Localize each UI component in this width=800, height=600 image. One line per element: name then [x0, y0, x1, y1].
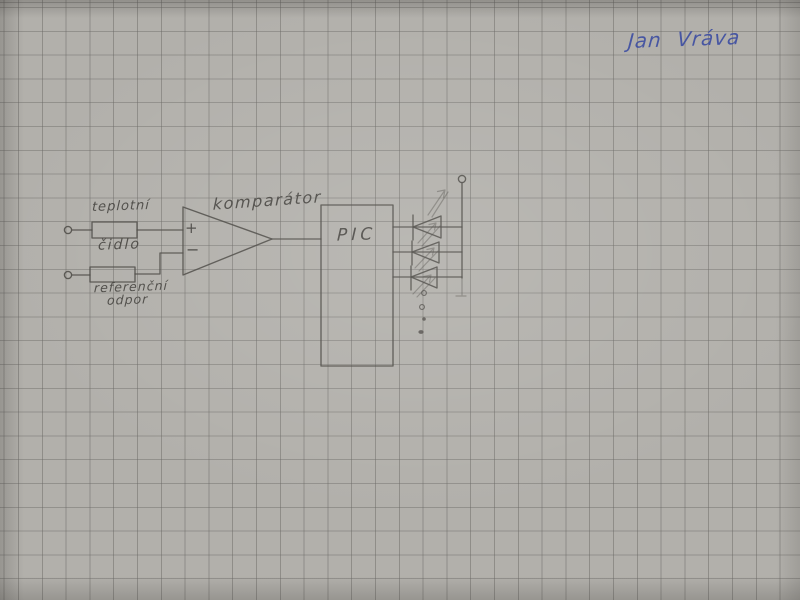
continuation-dot-4	[418, 330, 423, 334]
light-emission-arrow	[428, 190, 448, 217]
label-sensor-line2: čidlo	[98, 237, 142, 252]
input-terminal-bottom	[64, 271, 71, 278]
wire-reference-to-comparator	[135, 253, 183, 274]
led-symbol-2	[412, 241, 439, 271]
supply-rail-faint-end	[456, 278, 466, 296]
supply-terminal	[458, 175, 465, 182]
comparator-minus-marker: −	[186, 242, 199, 258]
resistor-sensor	[92, 222, 137, 238]
label-reference-line2: odpor	[107, 293, 149, 307]
input-terminal-top	[64, 226, 71, 233]
led-symbol-1	[413, 215, 441, 246]
signature: Jan Vráva	[627, 25, 741, 53]
continuation-dot-1	[422, 291, 427, 296]
continuation-dot-3	[422, 317, 426, 321]
graph-paper-photo: teplotní čidlo referenční odpor komparát…	[0, 0, 800, 600]
label-pic: PIC	[337, 226, 377, 244]
label-sensor-line1: teplotní	[92, 199, 150, 214]
comparator-plus-marker: +	[185, 221, 198, 236]
led-symbol-3	[411, 266, 437, 297]
continuation-dot-2	[420, 305, 425, 310]
